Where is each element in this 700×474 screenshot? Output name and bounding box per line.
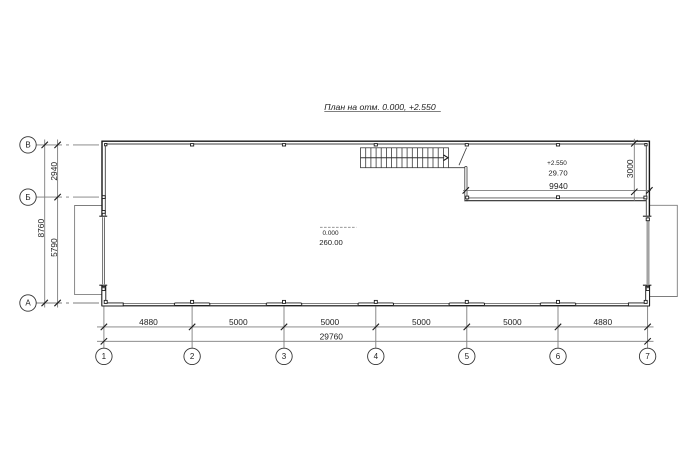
svg-text:1: 1 <box>102 352 107 361</box>
svg-text:6: 6 <box>556 352 561 361</box>
svg-text:План на отм. 0.000, +2.550: План на отм. 0.000, +2.550 <box>324 102 436 112</box>
svg-text:Б: Б <box>25 193 30 202</box>
svg-text:3000: 3000 <box>625 159 635 178</box>
svg-text:А: А <box>25 299 31 308</box>
svg-text:+2.550: +2.550 <box>547 160 567 167</box>
svg-text:4: 4 <box>374 352 379 361</box>
svg-text:5000: 5000 <box>321 317 340 327</box>
svg-text:0.000: 0.000 <box>323 230 339 237</box>
svg-text:260.00: 260.00 <box>319 238 343 247</box>
svg-text:29760: 29760 <box>320 331 344 341</box>
svg-text:3: 3 <box>282 352 287 361</box>
svg-text:5: 5 <box>465 352 470 361</box>
svg-text:29.70: 29.70 <box>548 168 567 177</box>
svg-text:2: 2 <box>190 352 195 361</box>
svg-text:5000: 5000 <box>412 317 431 327</box>
svg-text:4880: 4880 <box>593 317 612 327</box>
svg-text:2940: 2940 <box>49 162 59 181</box>
svg-text:8760: 8760 <box>36 219 46 238</box>
svg-text:5790: 5790 <box>49 238 59 257</box>
svg-text:5000: 5000 <box>503 317 522 327</box>
svg-text:7: 7 <box>645 352 650 361</box>
svg-text:4880: 4880 <box>139 317 158 327</box>
svg-text:В: В <box>25 141 30 150</box>
svg-text:5000: 5000 <box>229 317 248 327</box>
svg-text:9940: 9940 <box>549 181 568 191</box>
